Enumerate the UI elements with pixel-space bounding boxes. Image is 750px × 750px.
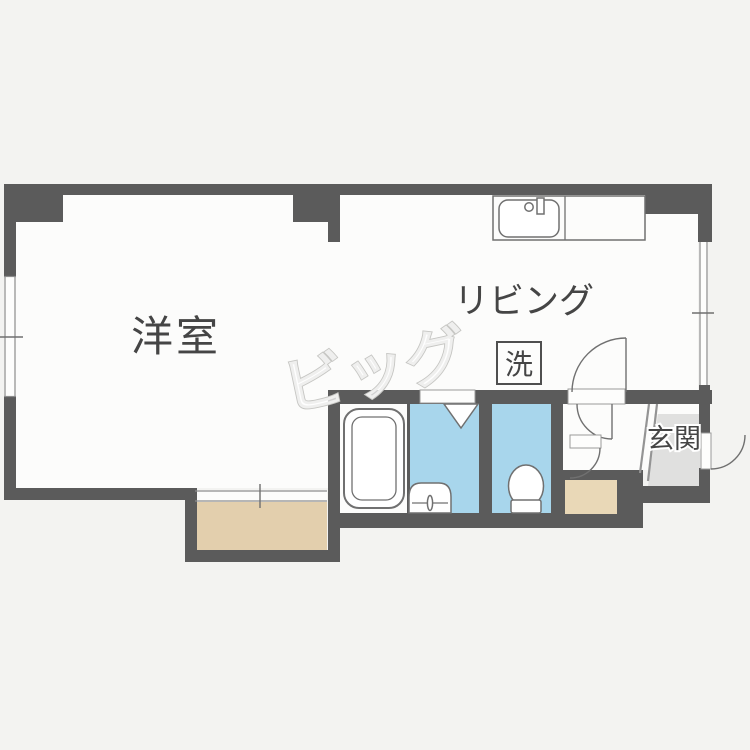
entrance-label: 玄関	[647, 424, 701, 455]
wall-balcony-bottom	[185, 550, 340, 562]
wall-bottom-left	[4, 488, 197, 500]
wall-center-stub	[328, 184, 340, 242]
floor-plan-image: ビッグ 洋室 リビング 洗 玄関	[0, 0, 750, 750]
wall-toilet-hall	[551, 390, 563, 515]
balcony-window-floor	[195, 490, 327, 502]
wall-left-upper	[4, 195, 16, 276]
wall-right-upper	[698, 184, 712, 242]
faucet-icon	[525, 203, 533, 211]
balcony-floor	[195, 502, 327, 551]
hall-door-panel	[570, 435, 601, 448]
wall-top	[4, 184, 698, 195]
wall-entrance-bottom	[640, 486, 710, 503]
living-door-threshold	[568, 389, 625, 404]
faucet-handle-icon	[537, 198, 544, 214]
shoe-cabinet-top	[565, 480, 617, 514]
wall-bath-bottom	[333, 513, 643, 528]
toilet-base	[511, 500, 541, 513]
wash-basin-handle	[427, 496, 432, 511]
western-room-label: 洋室	[131, 312, 221, 361]
wall-left-lower	[4, 397, 16, 500]
front-door-leaf	[701, 433, 711, 469]
wall-wash-toilet	[479, 390, 492, 515]
entrance-upper-strip	[652, 404, 700, 414]
laundry-label: 洗	[505, 348, 533, 381]
floor-plan-svg: ビッグ 洋室 リビング 洗 玄関	[0, 0, 750, 750]
living-room-label: リビング	[454, 282, 594, 322]
